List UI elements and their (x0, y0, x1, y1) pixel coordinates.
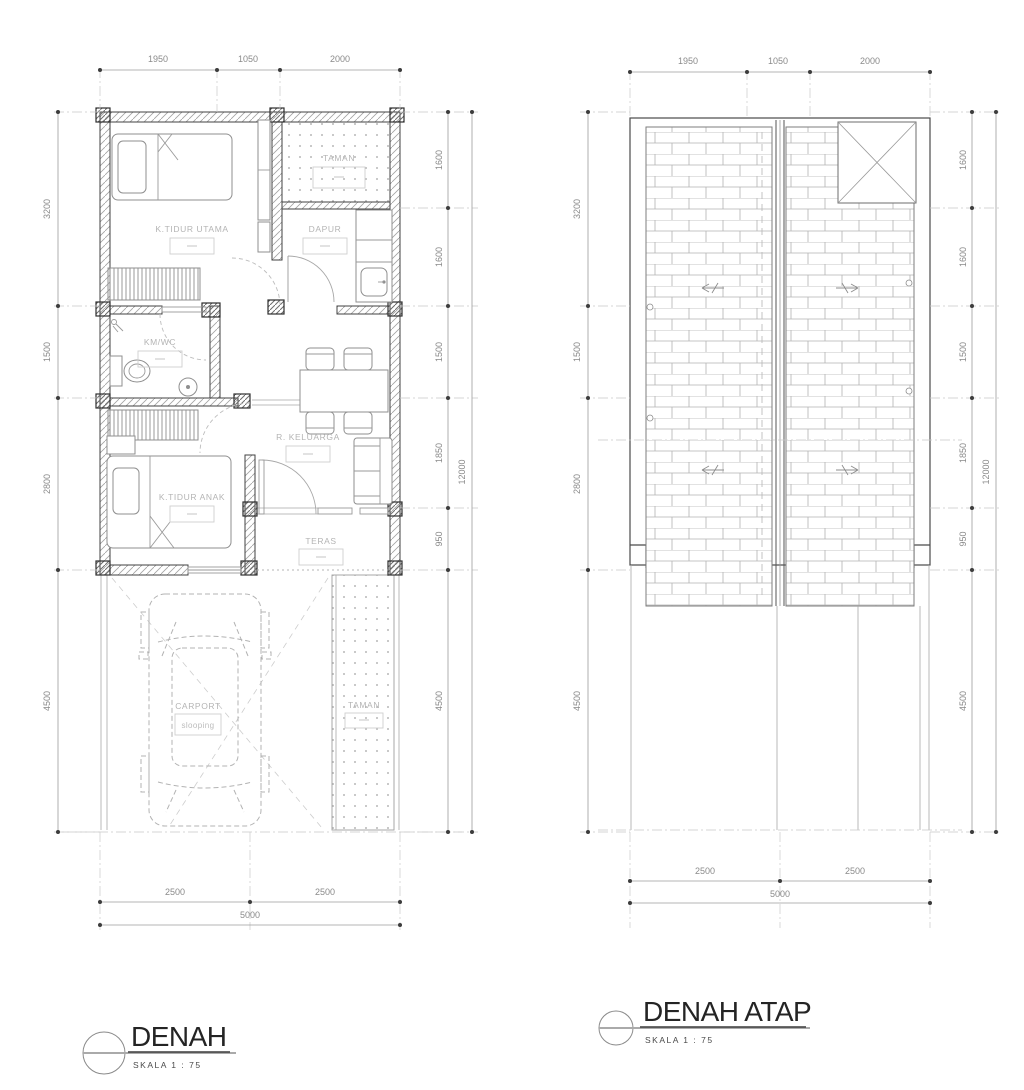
fp-dim-left-4: 4500 (42, 691, 52, 711)
fp-dim-bottom-1: 2500 (165, 887, 185, 897)
room-label-carport: CARPORT (175, 701, 221, 711)
rp-dim-top-2: 1050 (768, 56, 788, 66)
kids-nightstand (107, 436, 135, 454)
furniture-kids-bedroom (107, 410, 231, 548)
architectural-drawing-sheet: K.TIDUR UTAMA DAPUR TAMAN KM/WC R. KELUA… (0, 0, 1024, 1090)
roof-plan-title: DENAH ATAP (643, 996, 811, 1027)
room-label-bathroom: KM/WC (144, 337, 176, 347)
fp-dim-right-6: 4500 (434, 691, 444, 711)
rp-dim-left-3: 2800 (572, 474, 582, 494)
rp-dim-right-3: 1500 (958, 342, 968, 362)
fp-dim-left-2: 1500 (42, 342, 52, 362)
dining-chair (306, 348, 334, 370)
fp-dim-top-2: 1050 (238, 54, 258, 64)
fp-dim-right-5: 950 (434, 531, 444, 546)
room-label-garden-bottom: TAMAN (348, 700, 380, 710)
floor-plan-title-block: DENAH SKALA 1 : 75 (83, 1021, 236, 1074)
fp-dim-right-1: 1600 (434, 150, 444, 170)
toilet-tank (110, 356, 122, 386)
dining-chair (344, 412, 372, 434)
kids-bed-pillow (113, 468, 139, 514)
floor-plan-title: DENAH (131, 1021, 227, 1052)
fp-dim-right-4: 1850 (434, 443, 444, 463)
room-label-garden-top: TAMAN (323, 153, 355, 163)
roof-ridge (776, 120, 784, 606)
fp-dim-top-1: 1950 (148, 54, 168, 64)
rp-dim-right-1: 1600 (958, 150, 968, 170)
drawing-canvas: K.TIDUR UTAMA DAPUR TAMAN KM/WC R. KELUA… (0, 0, 1024, 1090)
roof-void (838, 122, 916, 203)
room-label-family-room: R. KELUARGA (276, 432, 340, 442)
room-label-kids-bedroom: K.TIDUR ANAK (159, 492, 225, 502)
carport-slooping-note: slooping (181, 721, 214, 730)
fp-dim-right-3: 1500 (434, 342, 444, 362)
rp-dim-right-6: 4500 (958, 691, 968, 711)
furniture-bathroom (110, 320, 197, 397)
fp-dim-top-3: 2000 (330, 54, 350, 64)
master-bedroom-door-arc (232, 258, 280, 306)
dining-chair (344, 348, 372, 370)
rp-dim-left-4: 4500 (572, 691, 582, 711)
roof-tiles-left (646, 127, 772, 606)
site-boundary (62, 575, 462, 832)
fp-dim-left-1: 3200 (42, 199, 52, 219)
fp-dim-left-3: 2800 (42, 474, 52, 494)
rp-dim-bottom-total: 5000 (770, 889, 790, 899)
room-label-terrace: TERAS (305, 536, 336, 546)
fp-dim-total-right: 12000 (457, 459, 467, 484)
kitchen-door-arc (288, 256, 334, 302)
fp-dim-bottom-total: 5000 (240, 910, 260, 920)
dining-table (300, 370, 388, 412)
master-wardrobe (108, 268, 200, 300)
furniture-master-bedroom (108, 120, 270, 300)
toilet-bowl (124, 360, 150, 382)
roof-plan-title-block: DENAH ATAP SKALA 1 : 75 (599, 996, 811, 1045)
rp-dim-bottom-2: 2500 (845, 866, 865, 876)
roof-plan: 1950 1050 2000 3200 1500 2800 4500 1600 … (572, 56, 1002, 1045)
room-label-master-bedroom: K.TIDUR UTAMA (155, 224, 228, 234)
master-bed-pillow (118, 141, 146, 193)
kids-bedroom-door-arc (200, 403, 250, 453)
rp-dim-bottom-1: 2500 (695, 866, 715, 876)
fp-dim-bottom-2: 2500 (315, 887, 335, 897)
rp-dim-right-4: 1850 (958, 443, 968, 463)
rp-dim-right-2: 1600 (958, 247, 968, 267)
fp-dim-right-2: 1600 (434, 247, 444, 267)
floor-plan: K.TIDUR UTAMA DAPUR TAMAN KM/WC R. KELUA… (42, 54, 478, 1074)
rp-dim-left-2: 1500 (572, 342, 582, 362)
furniture-kitchen (356, 210, 392, 302)
entry-door-arc (262, 460, 316, 514)
furniture-family-room (300, 348, 392, 504)
rp-dim-left-1: 3200 (572, 199, 582, 219)
rp-dim-top-3: 2000 (860, 56, 880, 66)
room-label-kitchen: DAPUR (309, 224, 342, 234)
roof-plan-scale: SKALA 1 : 75 (645, 1035, 714, 1045)
rp-dim-top-1: 1950 (678, 56, 698, 66)
shower-head-icon (112, 320, 117, 325)
rp-dim-total-right: 12000 (981, 459, 991, 484)
rp-dim-right-5: 950 (958, 531, 968, 546)
floor-plan-scale: SKALA 1 : 75 (133, 1060, 202, 1070)
dining-chair (306, 412, 334, 434)
